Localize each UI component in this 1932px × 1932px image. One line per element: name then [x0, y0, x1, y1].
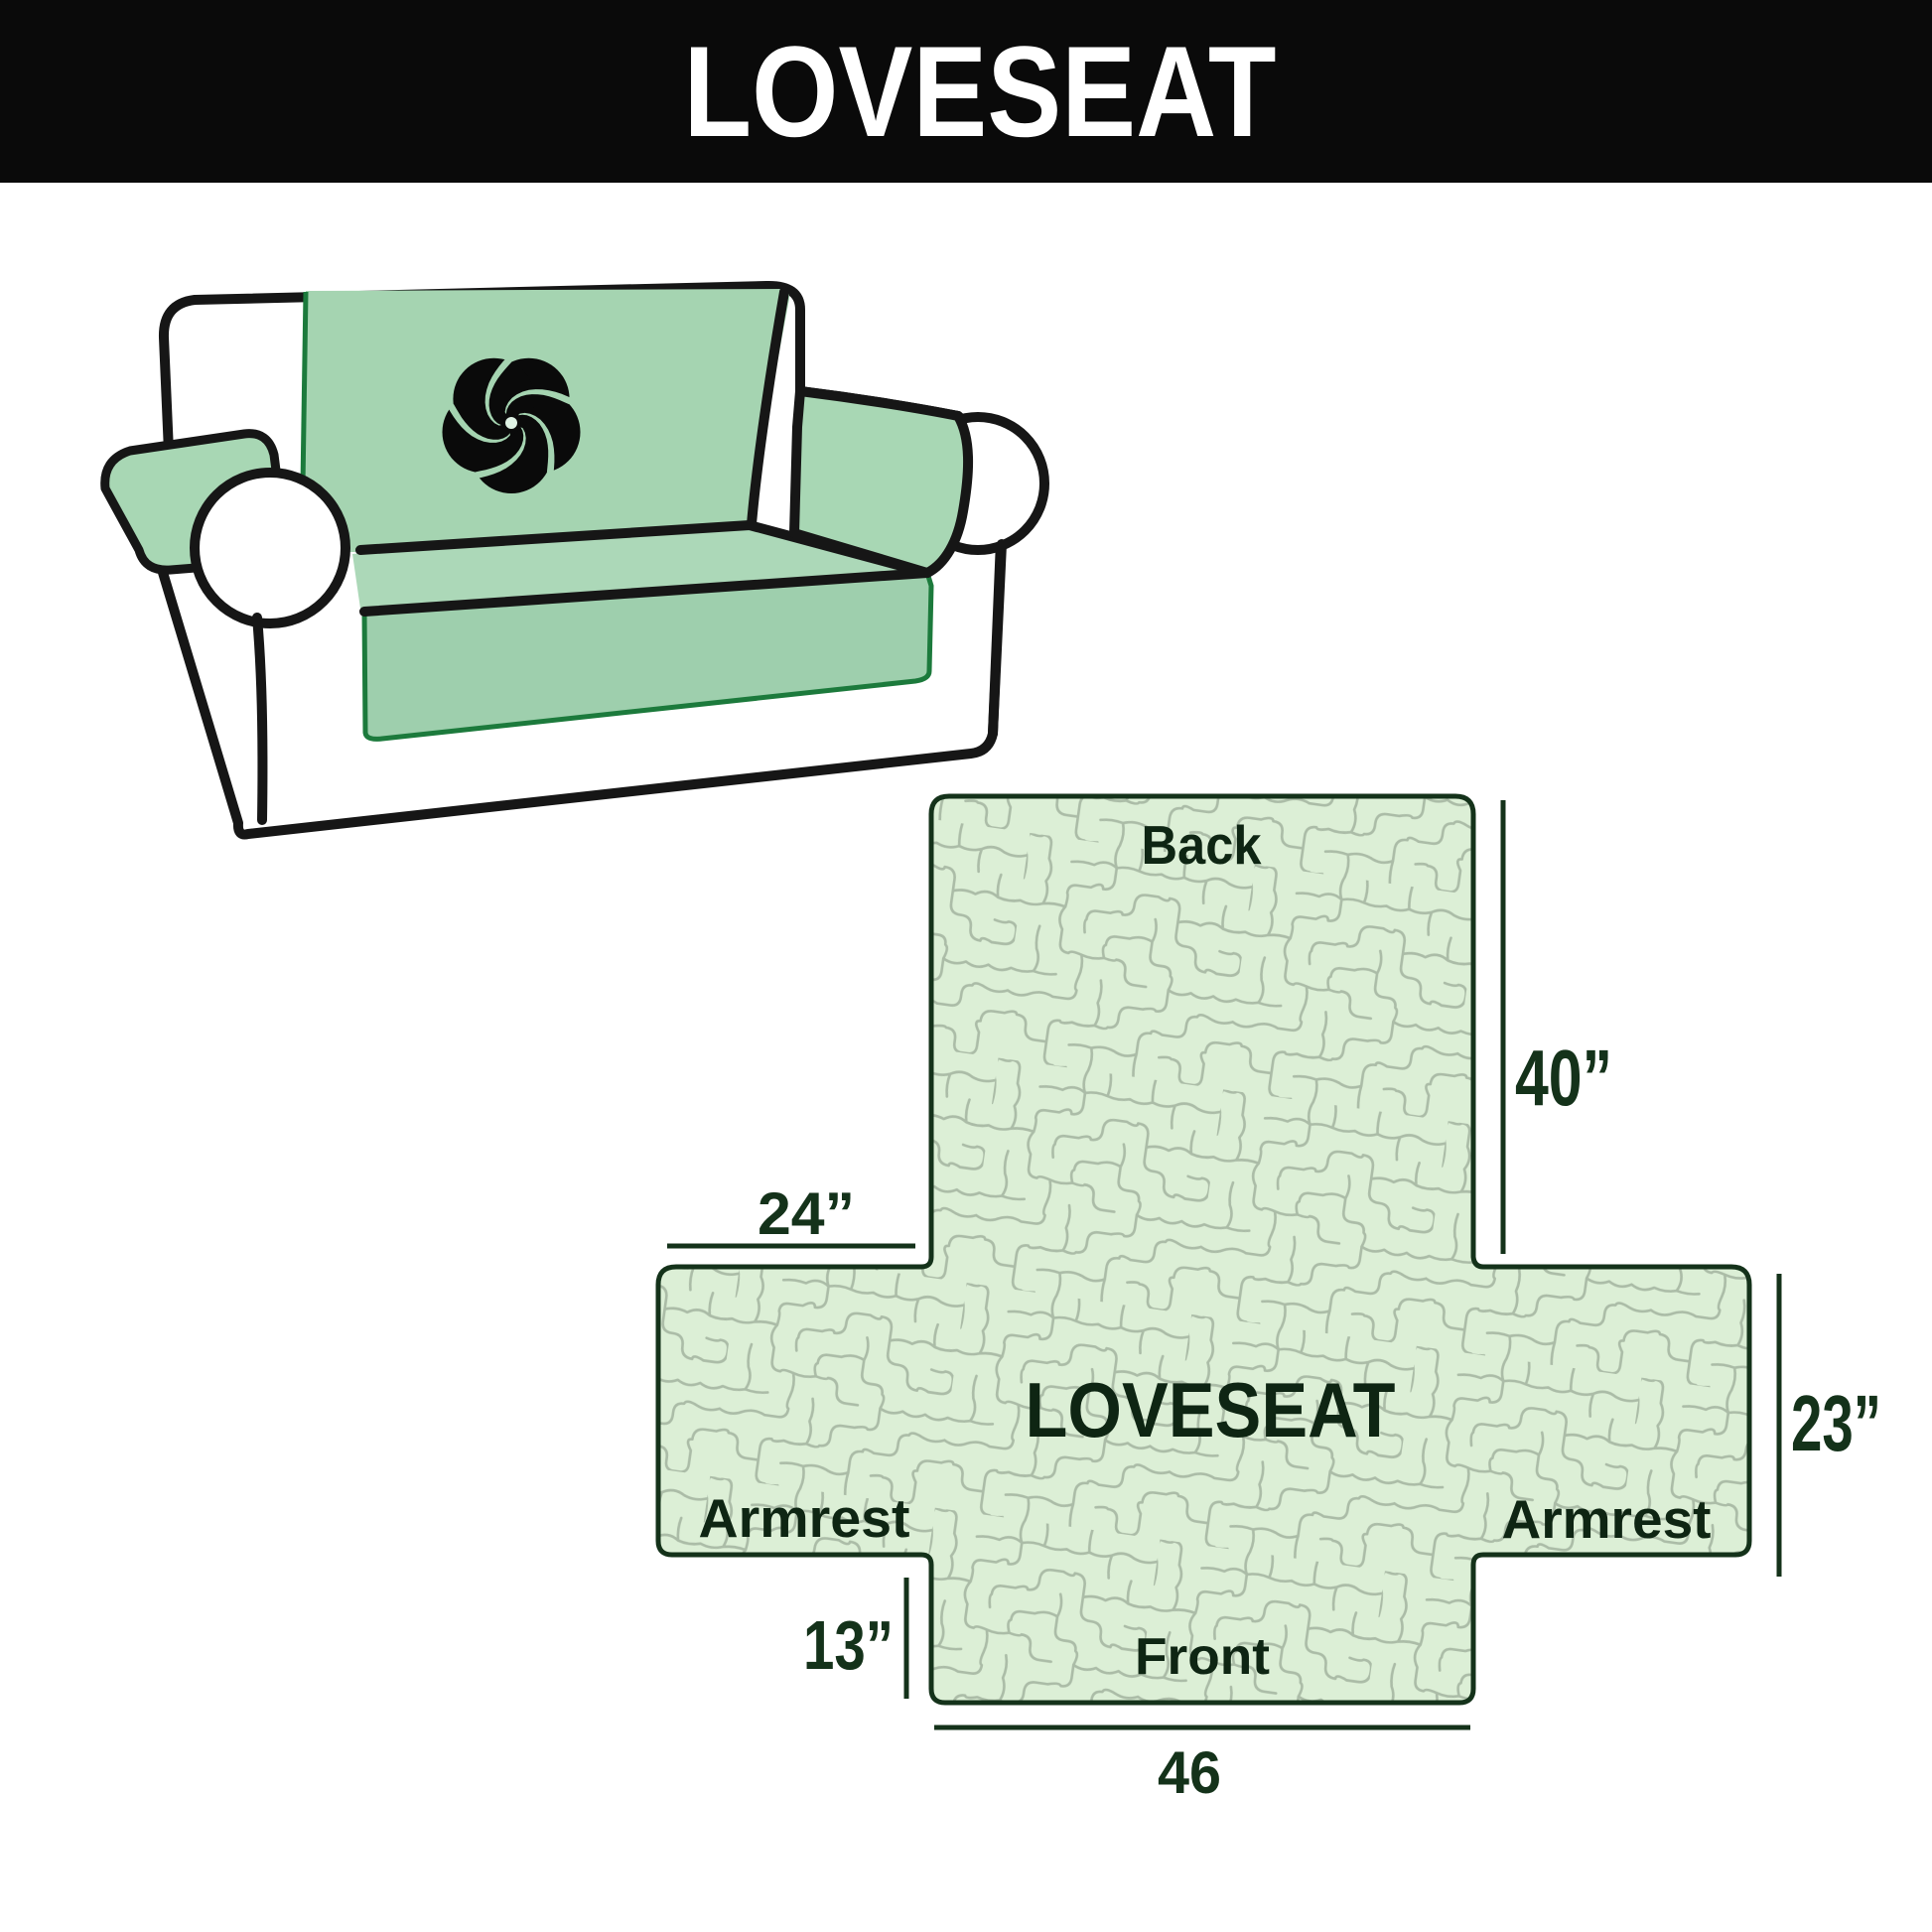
svg-text:40”: 40” [1515, 1034, 1612, 1122]
svg-text:Armrest: Armrest [699, 1487, 910, 1549]
svg-text:LOVESEAT: LOVESEAT [1026, 1366, 1396, 1453]
svg-text:13”: 13” [803, 1606, 894, 1684]
svg-text:LOVESEAT: LOVESEAT [684, 19, 1277, 164]
svg-text:Front: Front [1135, 1628, 1270, 1686]
svg-text:Back: Back [1142, 814, 1262, 876]
svg-text:Armrest: Armrest [1502, 1488, 1712, 1550]
svg-text:23”: 23” [1791, 1379, 1881, 1467]
svg-text:46: 46 [1158, 1739, 1221, 1806]
svg-text:24”: 24” [758, 1180, 855, 1247]
